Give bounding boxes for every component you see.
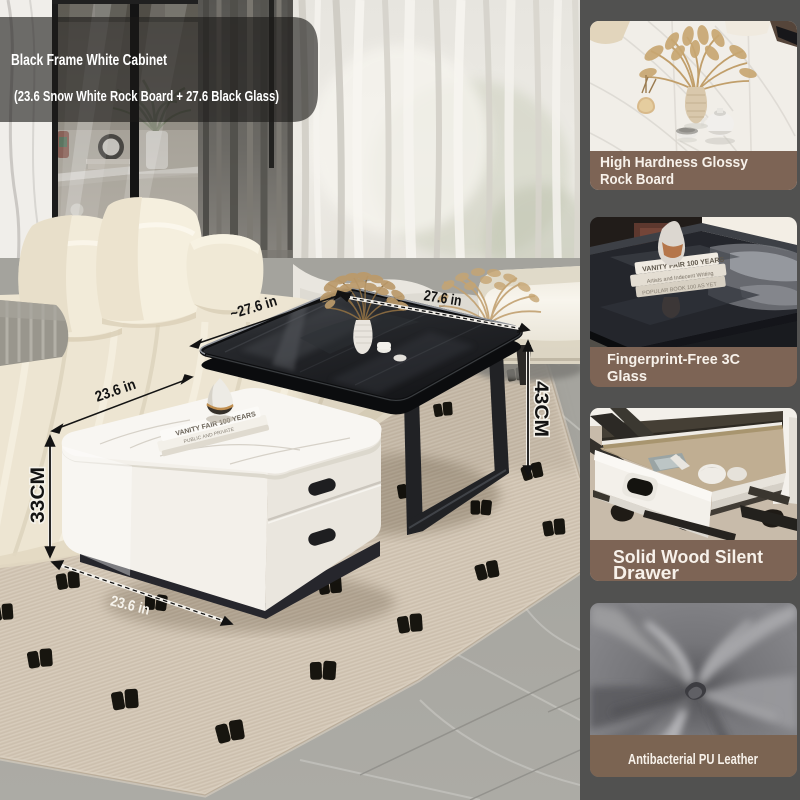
svg-text:Fingerprint-Free 3C: Fingerprint-Free 3C xyxy=(607,351,740,368)
svg-text:33CM: 33CM xyxy=(28,467,49,523)
svg-text:Black Frame White Cabinet: Black Frame White Cabinet xyxy=(11,52,168,69)
svg-text:Glass: Glass xyxy=(607,368,647,385)
svg-text:Antibacterial PU Leather: Antibacterial PU Leather xyxy=(628,752,758,768)
svg-text:High Hardness Glossy: High Hardness Glossy xyxy=(600,154,749,171)
svg-text:Drawer: Drawer xyxy=(613,563,679,581)
svg-text:Rock Board: Rock Board xyxy=(600,171,674,188)
svg-text:(23.6 Snow White Rock Board +: (23.6 Snow White Rock Board + 27.6 Black… xyxy=(14,88,279,105)
svg-text:43CM: 43CM xyxy=(530,381,551,437)
